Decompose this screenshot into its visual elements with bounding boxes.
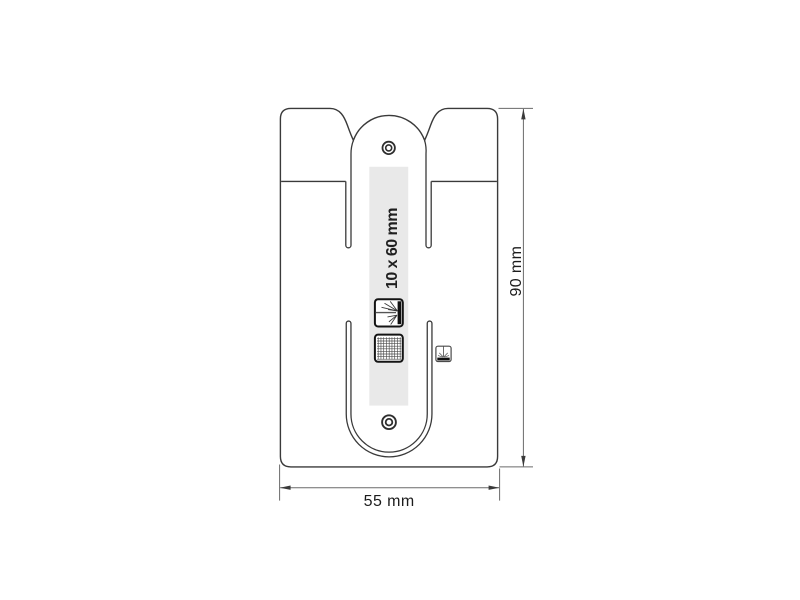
svg-text:10 x 60 mm: 10 x 60 mm xyxy=(384,208,401,289)
svg-text:55 mm: 55 mm xyxy=(364,493,415,510)
svg-text:90 mm: 90 mm xyxy=(508,246,525,297)
